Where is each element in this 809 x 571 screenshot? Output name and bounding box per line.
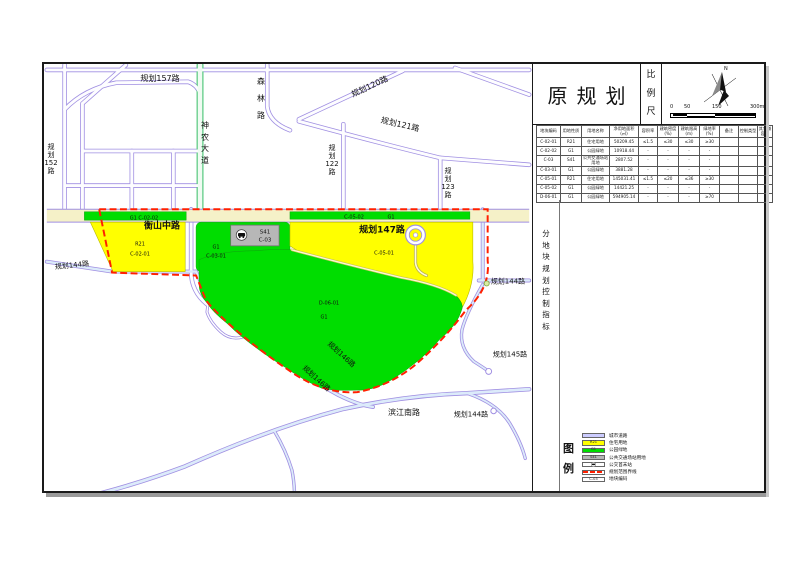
zone-label: G1 [387,216,394,221]
road-label: 规划152路 [44,143,57,175]
table-cell: - [700,184,720,193]
table-cell: ≥30 [700,175,720,184]
table-cell: ≤20 [658,175,679,184]
title-panel: 原规划 比例尺 N 05015030 [532,64,764,491]
table-cell: - [658,193,679,202]
table-cell [720,147,739,156]
table-header-cell: 绿地率(%) [700,126,720,138]
road-label: 规划144路 [454,412,488,419]
table-cell [739,156,758,167]
table-header-row: 地块编码用地性质用地名称净用地面积(㎡)容积率建筑密度(%)建筑限高(m)绿地率… [537,126,773,138]
table-cell: - [658,166,679,175]
legend-swatch-road [582,433,605,438]
road-surface [274,431,294,491]
title-row: 原规划 比例尺 N 05015030 [533,64,764,125]
legend-swatch-redline [582,470,605,475]
legend-title: 图例 [563,439,574,480]
scale-tick: 50 [684,104,690,110]
table-cell: C-05-01 [537,175,561,184]
legend-swatch-green: G1 [582,448,605,453]
road-label: 规划147路 [359,227,405,236]
table-cell: - [679,147,700,156]
legend-label: 城市道路 [609,433,627,439]
table-cell [720,138,739,147]
table-cell: 住宅用地 [582,175,610,184]
plan-title: 原规划 [533,64,641,124]
table-cell: 594905.14 [610,193,639,202]
road-casing [65,82,200,110]
table-header-cell: 备注 [720,126,739,138]
bus-icon [589,462,598,467]
zone-label: D-06-01 [319,302,339,307]
table-cell: G1 [561,166,582,175]
table-row: C-05-02G1公园绿地14421.25---- [537,184,773,193]
table-cell: - [658,156,679,167]
table-cell: ≥30 [700,138,720,147]
table-cell: ≤36 [679,175,700,184]
legend-swatch-code: C-03 [582,477,605,482]
legend-item: G1公园绿地 [582,447,646,454]
table-cell: C-02-01 [537,138,561,147]
table-header-cell: 用地性质 [561,126,582,138]
zone-label: C-05-01 [374,252,394,257]
table-header-cell: 建筑限高(m) [679,126,700,138]
scale-tick: 150 [712,104,722,110]
table-cell: ≤30 [679,138,700,147]
table-cell [758,175,773,184]
road-label: 规划145路 [493,352,527,359]
legend-item: 规划范围界线 [582,468,646,475]
zone-label: G1 [320,316,327,321]
table-cell: 14421.25 [610,184,639,193]
table-cell: - [700,147,720,156]
table-cell: - [639,193,658,202]
table-cell: - [639,156,658,167]
scale-ticks: 050150300m [662,104,764,112]
sheet-shadow-right [766,66,769,497]
scale-bar [670,113,756,118]
table-cell: ≤1.5 [639,175,658,184]
road-surface [267,65,290,130]
table-cell: R21 [561,175,582,184]
north-letter: N [724,66,728,72]
table-cell [739,175,758,184]
legend-label: 公交首末站 [609,462,632,468]
node-circle [484,281,489,286]
control-table: 地块编码用地性质用地名称净用地面积(㎡)容积率建筑密度(%)建筑限高(m)绿地率… [536,125,773,203]
legend-swatch-bus [582,462,605,467]
legend-label: 住宅用地 [609,440,627,446]
table-cell: 50209.45 [610,138,639,147]
table-cell [758,147,773,156]
table-row: C-05-01R21住宅用地145031.41≤1.5≤20≤36≥30 [537,175,773,184]
road-bulb [491,408,497,414]
table-cell: ≤30 [658,138,679,147]
table-cell [720,156,739,167]
table-cell: G1 [561,193,582,202]
zone-label: G1 [212,246,219,251]
table-row: C-02-01R21住宅用地50209.45≤1.5≤30≤30≥30 [537,138,773,147]
table-cell: C-03-01 [537,166,561,175]
road-label: 规划144路 [491,279,525,286]
table-cell: 2807.52 [610,156,639,167]
table-cell: - [679,166,700,175]
drawing-canvas: 规划157路神农大道森林路规划152路规划120路规划121路规划122路规划1… [0,0,809,571]
table-cell: - [639,166,658,175]
table-cell: 145031.41 [610,175,639,184]
table-cell [739,184,758,193]
table-row: C-02-02G1公园绿地10918.44---- [537,147,773,156]
table-cell: ≤1.5 [639,138,658,147]
scale-tick: 0 [670,104,673,110]
road-label: 神农大道 [201,120,209,166]
table-cell: 10918.44 [610,147,639,156]
road-surface [47,389,529,491]
table-cell: 公园绿地 [582,193,610,202]
legend-items: 城市道路R21住宅用地G1公园绿地S41公共交通场站用地公交首末站规划范围界线C… [582,432,646,483]
table-cell: 3881.28 [610,166,639,175]
roundabout [406,225,426,245]
table-cell: - [700,166,720,175]
side-caption-strip: 分地块规划控制指标 [533,200,560,491]
table-header-cell: 容积率 [639,126,658,138]
road-casing [467,393,525,458]
legend-label: 规划范围界线 [609,469,637,475]
table-cell [739,138,758,147]
road-label: 森林路 [257,74,265,124]
table-cell [720,175,739,184]
zone-label: R21 [135,243,145,248]
table-header-cell: 净用地面积(㎡) [610,126,639,138]
table-cell: - [679,156,700,167]
table-cell: - [679,184,700,193]
side-caption: 分地块规划控制指标 [542,228,550,333]
map-drawing [44,64,532,491]
table-cell: - [639,147,658,156]
table-cell: 公园绿地 [582,166,610,175]
table-cell [720,166,739,175]
scale-area: N 050150300m [662,64,764,124]
zone-C-05-02 [290,212,470,219]
table-cell: S41 [561,156,582,167]
table-cell: 公园绿地 [582,184,610,193]
road-label: 规划157路 [140,75,179,83]
table-header-cell: 建筑密度(%) [658,126,679,138]
transit-station-S41 [231,225,279,246]
zone-label: S41 [260,230,271,236]
table-row: C-03S41公共交通场站用地2807.52---- [537,156,773,167]
table-cell [758,184,773,193]
table-cell: - [658,184,679,193]
table-cell: 公共交通场站用地 [582,156,610,167]
road-bulb [486,368,492,374]
table-cell: - [700,156,720,167]
road-surface [467,393,525,458]
table-row: C-03-01G1公园绿地3881.28---- [537,166,773,175]
table-cell [720,193,739,202]
table-row: D-06-01G1公园绿地594905.14---≥70 [537,193,773,202]
table-cell: - [679,193,700,202]
table-cell [720,184,739,193]
legend-swatch-gray: S41 [582,455,605,460]
table-cell [758,166,773,175]
table-cell [739,193,758,202]
table-cell [758,156,773,167]
road-label: 衡山中路 [144,223,180,232]
legend-label: 公园绿地 [609,447,627,453]
legend-item: R21住宅用地 [582,439,646,446]
legend-label: 公共交通场站用地 [609,455,646,461]
road-casing [267,65,290,130]
table-cell: - [658,147,679,156]
zone-label: C-05-02 [344,216,364,221]
road-casing [274,431,294,491]
scale-label: 比例尺 [641,64,662,124]
legend-item: S41公共交通场站用地 [582,454,646,461]
table-cell: C-05-02 [537,184,561,193]
zone-label: C-02-01 [130,253,150,258]
table-cell [739,147,758,156]
legend-item: 城市道路 [582,432,646,439]
scale-tick: 300m [750,104,764,110]
table-cell [758,138,773,147]
table-cell: 住宅用地 [582,138,610,147]
zone-label: C-03 [259,238,272,244]
table-cell: C-02-02 [537,147,561,156]
table-header-cell: 控制类型 [739,126,758,138]
road-label: 规划122路 [325,144,338,176]
drawing-sheet: 规划157路神农大道森林路规划152路规划120路规划121路规划122路规划1… [42,62,766,493]
legend-swatch-yellow: R21 [582,440,605,445]
table-cell: R21 [561,138,582,147]
table-cell: ≥70 [700,193,720,202]
table-header-cell: 地块编码 [537,126,561,138]
table-cell [758,193,773,202]
road-casing [47,389,529,491]
zone-label: C-03-01 [206,255,226,260]
table-header-cell: 其它兼容性 [758,126,773,138]
sheet-shadow [46,493,768,497]
planning-map: 规划157路神农大道森林路规划152路规划120路规划121路规划122路规划1… [44,64,532,491]
legend: 图例 城市道路R21住宅用地G1公园绿地S41公共交通场站用地公交首末站规划范围… [560,432,760,488]
legend-item: C-03地块编码 [582,476,646,483]
table-cell: 公园绿地 [582,147,610,156]
table-cell: - [639,184,658,193]
table-cell: G1 [561,147,582,156]
table-cell: C-03 [537,156,561,167]
table-header-cell: 用地名称 [582,126,610,138]
road-label: 规划123路 [441,167,454,199]
legend-item: 公交首末站 [582,461,646,468]
road-label: 滨江南路 [388,409,420,417]
legend-label: 地块编码 [609,476,627,482]
table-cell [739,166,758,175]
table-cell: G1 [561,184,582,193]
